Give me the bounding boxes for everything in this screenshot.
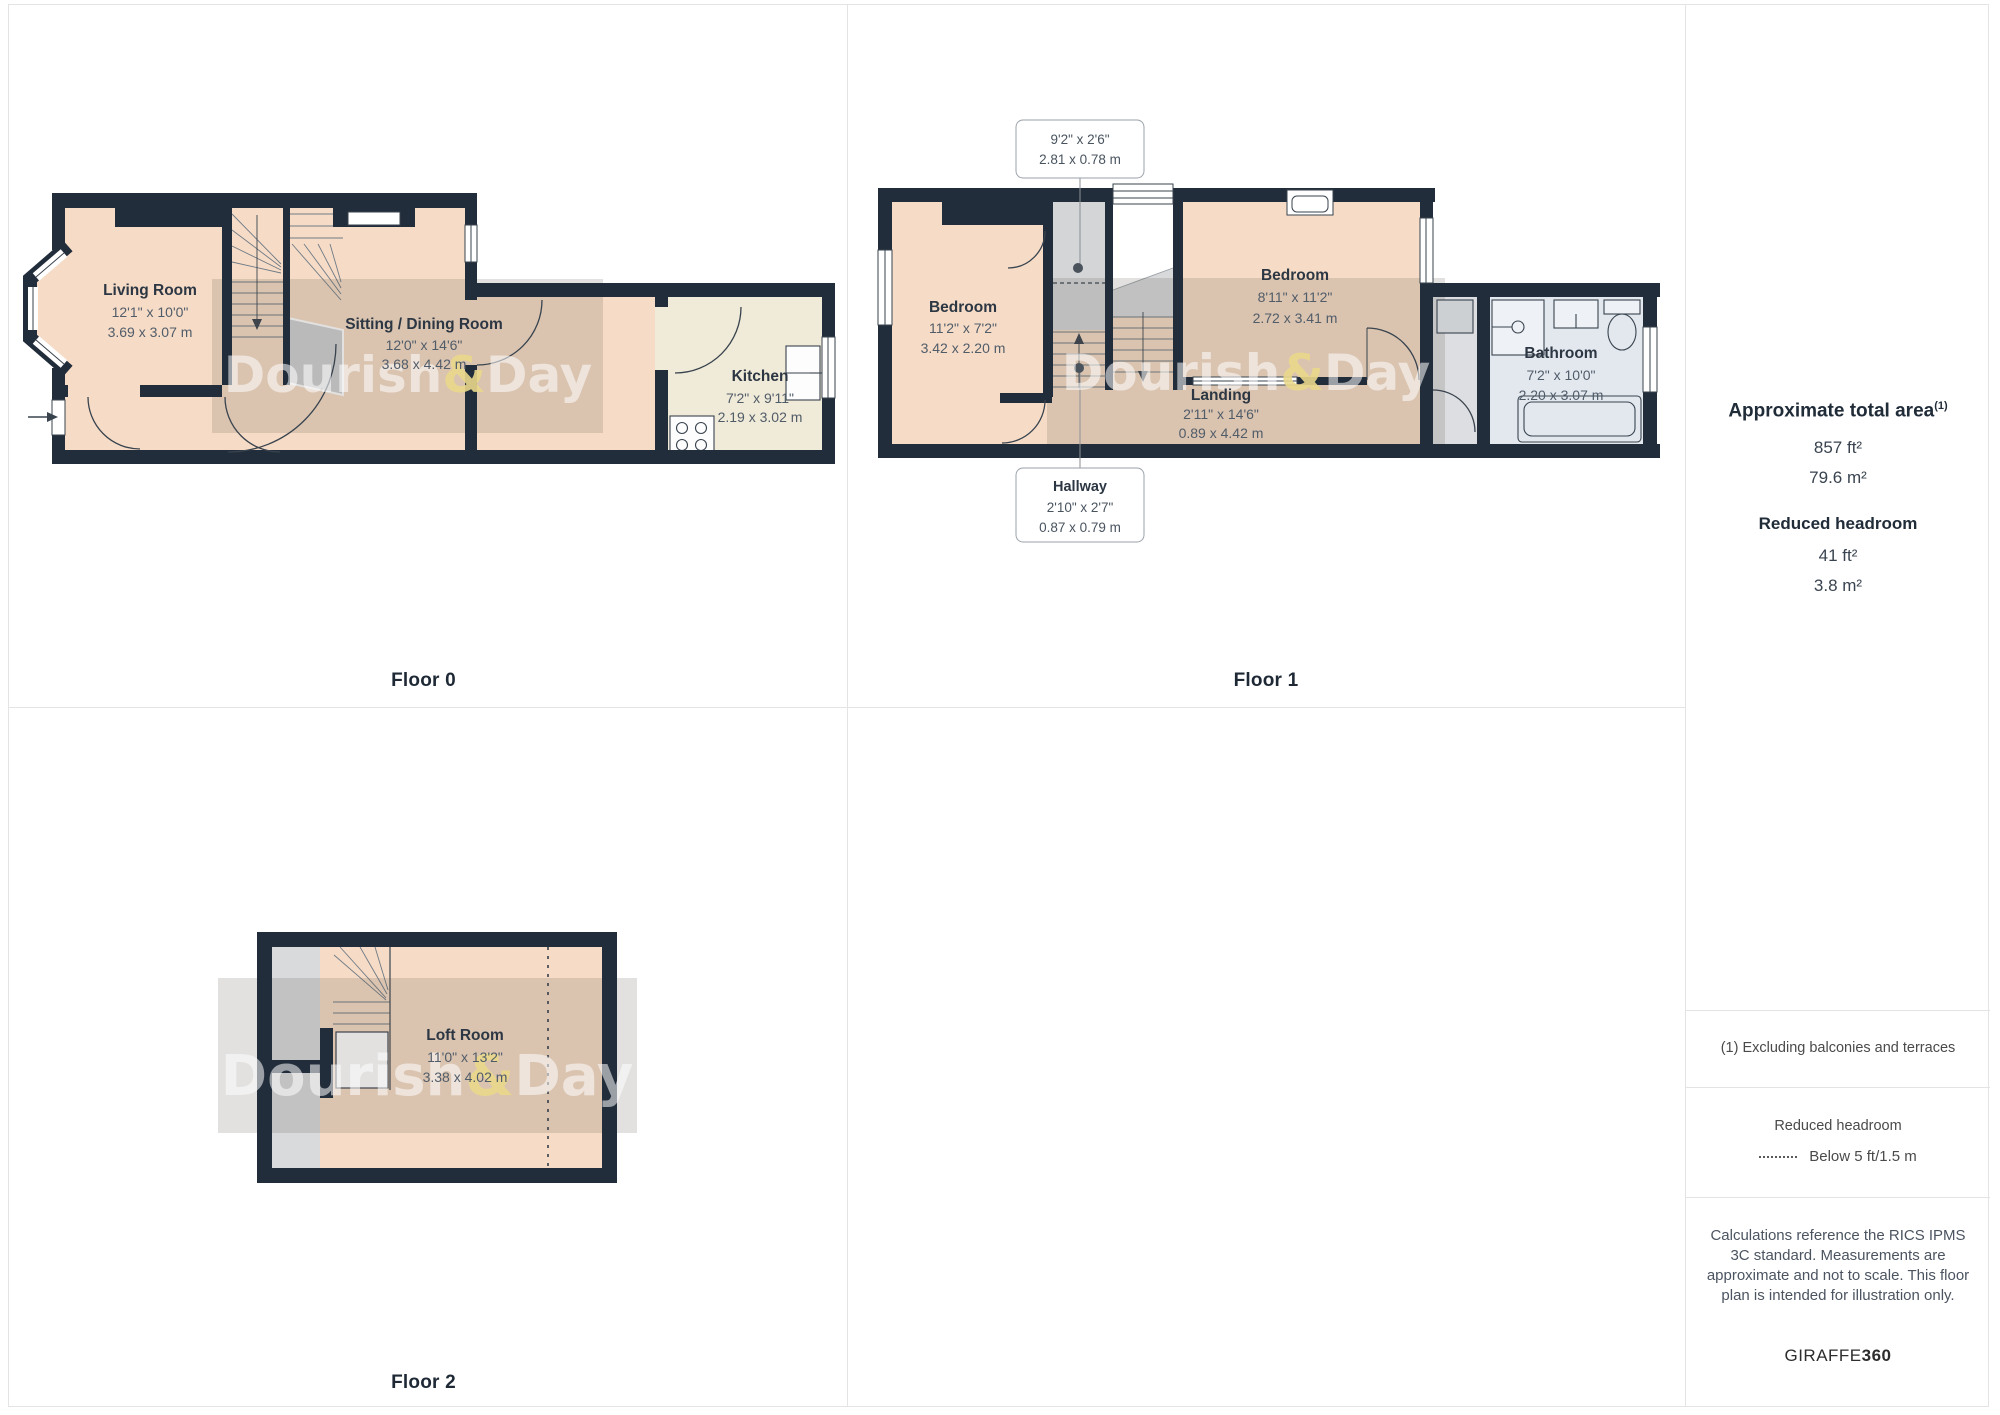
floor-0-plan: Dourish&Day Living Room 12'1" x 10'0" 3.…: [0, 0, 847, 707]
sitting-dining-dims-m: 3.68 x 4.42 m: [382, 356, 467, 372]
bathroom-dims-ft: 7'2" x 10'0": [1527, 367, 1596, 383]
watermark-floor-0: Dourish&Day: [224, 346, 593, 404]
callout-box-stair: 9'2" x 2'6" 2.81 x 0.78 m: [1016, 120, 1144, 178]
kitchen-dims-m: 2.19 x 3.02 m: [718, 409, 803, 425]
bathroom-dims-m: 2.20 x 3.07 m: [1519, 387, 1604, 403]
total-area-ft: 857 ft²: [1686, 438, 1990, 458]
loft-room-label: Loft Room: [426, 1027, 503, 1044]
floorplan-page: Dourish&Day Living Room 12'1" x 10'0" 3.…: [0, 0, 2000, 1415]
sitting-dining-dims-ft: 12'0" x 14'6": [386, 337, 463, 353]
total-area-m: 79.6 m²: [1686, 468, 1990, 488]
floor-1-plan: Dourish&Day 9'2" x 2'6" 2.81 x 0.78 m Ha…: [847, 0, 1685, 707]
landing-dims-ft: 2'11" x 14'6": [1183, 406, 1259, 422]
kitchen-dims-ft: 7'2" x 9'11": [726, 390, 794, 406]
living-room-dims-ft: 12'1" x 10'0": [112, 304, 189, 320]
landing-label: Landing: [1191, 387, 1251, 404]
living-room-label: Living Room: [103, 282, 197, 299]
disclaimer-text: Calculations reference the RICS IPMS 3C …: [1700, 1226, 1976, 1306]
stair-callout-dims-ft: 9'2" x 2'6": [1050, 132, 1109, 147]
hallway-dims-ft: 2'10" x 2'7": [1047, 500, 1114, 515]
loft-room-dims-m: 3.38 x 4.02 m: [423, 1069, 508, 1085]
hallway-dims-m: 0.87 x 0.79 m: [1039, 520, 1121, 535]
sidebar-divider-3: [1685, 1197, 1990, 1198]
footnote: (1) Excluding balconies and terraces: [1686, 1040, 1990, 1056]
sitting-dining-room-label: Sitting / Dining Room: [345, 316, 503, 333]
legend-row: Below 5 ft/1.5 m: [1686, 1148, 1990, 1165]
total-area-footnote-marker: (1): [1934, 400, 1947, 412]
living-room-dims-m: 3.69 x 3.07 m: [108, 324, 193, 340]
reduced-headroom-ft: 41 ft²: [1686, 546, 1990, 566]
sidebar-divider-1: [1685, 1010, 1990, 1011]
floor-0-label: Floor 0: [0, 670, 847, 692]
bedroom-right-label: Bedroom: [1261, 267, 1329, 284]
bathroom-label: Bathroom: [1524, 345, 1597, 362]
loft-room-dims-ft: 11'0" x 13'2": [427, 1049, 503, 1065]
toilet-icon: [1604, 300, 1640, 314]
legend-heading: Reduced headroom: [1686, 1118, 1990, 1134]
callout-box-hallway: Hallway 2'10" x 2'7" 0.87 x 0.79 m: [1016, 468, 1144, 542]
bedroom-right-dims-ft: 8'11" x 11'2": [1258, 289, 1333, 305]
total-area-heading: Approximate total area(1): [1686, 400, 1990, 422]
hallway-label: Hallway: [1053, 479, 1107, 495]
landing-dims-m: 0.89 x 4.42 m: [1179, 425, 1264, 441]
area-summary: Approximate total area(1) 857 ft² 79.6 m…: [1686, 400, 1990, 596]
sidebar-divider-2: [1685, 1087, 1990, 1088]
legend: Reduced headroom Below 5 ft/1.5 m: [1686, 1118, 1990, 1165]
kitchen-label: Kitchen: [732, 368, 789, 385]
dotted-line-icon: [1759, 1156, 1797, 1158]
bedroom-right-dims-m: 2.72 x 3.41 m: [1253, 310, 1338, 326]
cupboard-icon: [1437, 300, 1473, 333]
reduced-headroom-heading: Reduced headroom: [1686, 514, 1990, 534]
giraffe360-logo: GIRAFFE360: [1686, 1346, 1990, 1366]
reduced-headroom-m: 3.8 m²: [1686, 576, 1990, 596]
floor-2-plan: Dourish&Day Loft Room 11'0" x 13'2" 3.38…: [0, 707, 847, 1415]
floor-1-label: Floor 1: [847, 670, 1685, 692]
legend-label: Below 5 ft/1.5 m: [1809, 1148, 1917, 1165]
floor-2-label: Floor 2: [0, 1372, 847, 1394]
bedroom-left-dims-ft: 11'2" x 7'2": [929, 320, 997, 336]
bedroom-left-label: Bedroom: [929, 299, 997, 316]
leader-dot-upper: [1073, 263, 1083, 273]
stair-callout-dims-m: 2.81 x 0.78 m: [1039, 152, 1121, 167]
bedroom-left-dims-m: 3.42 x 2.20 m: [921, 340, 1006, 356]
